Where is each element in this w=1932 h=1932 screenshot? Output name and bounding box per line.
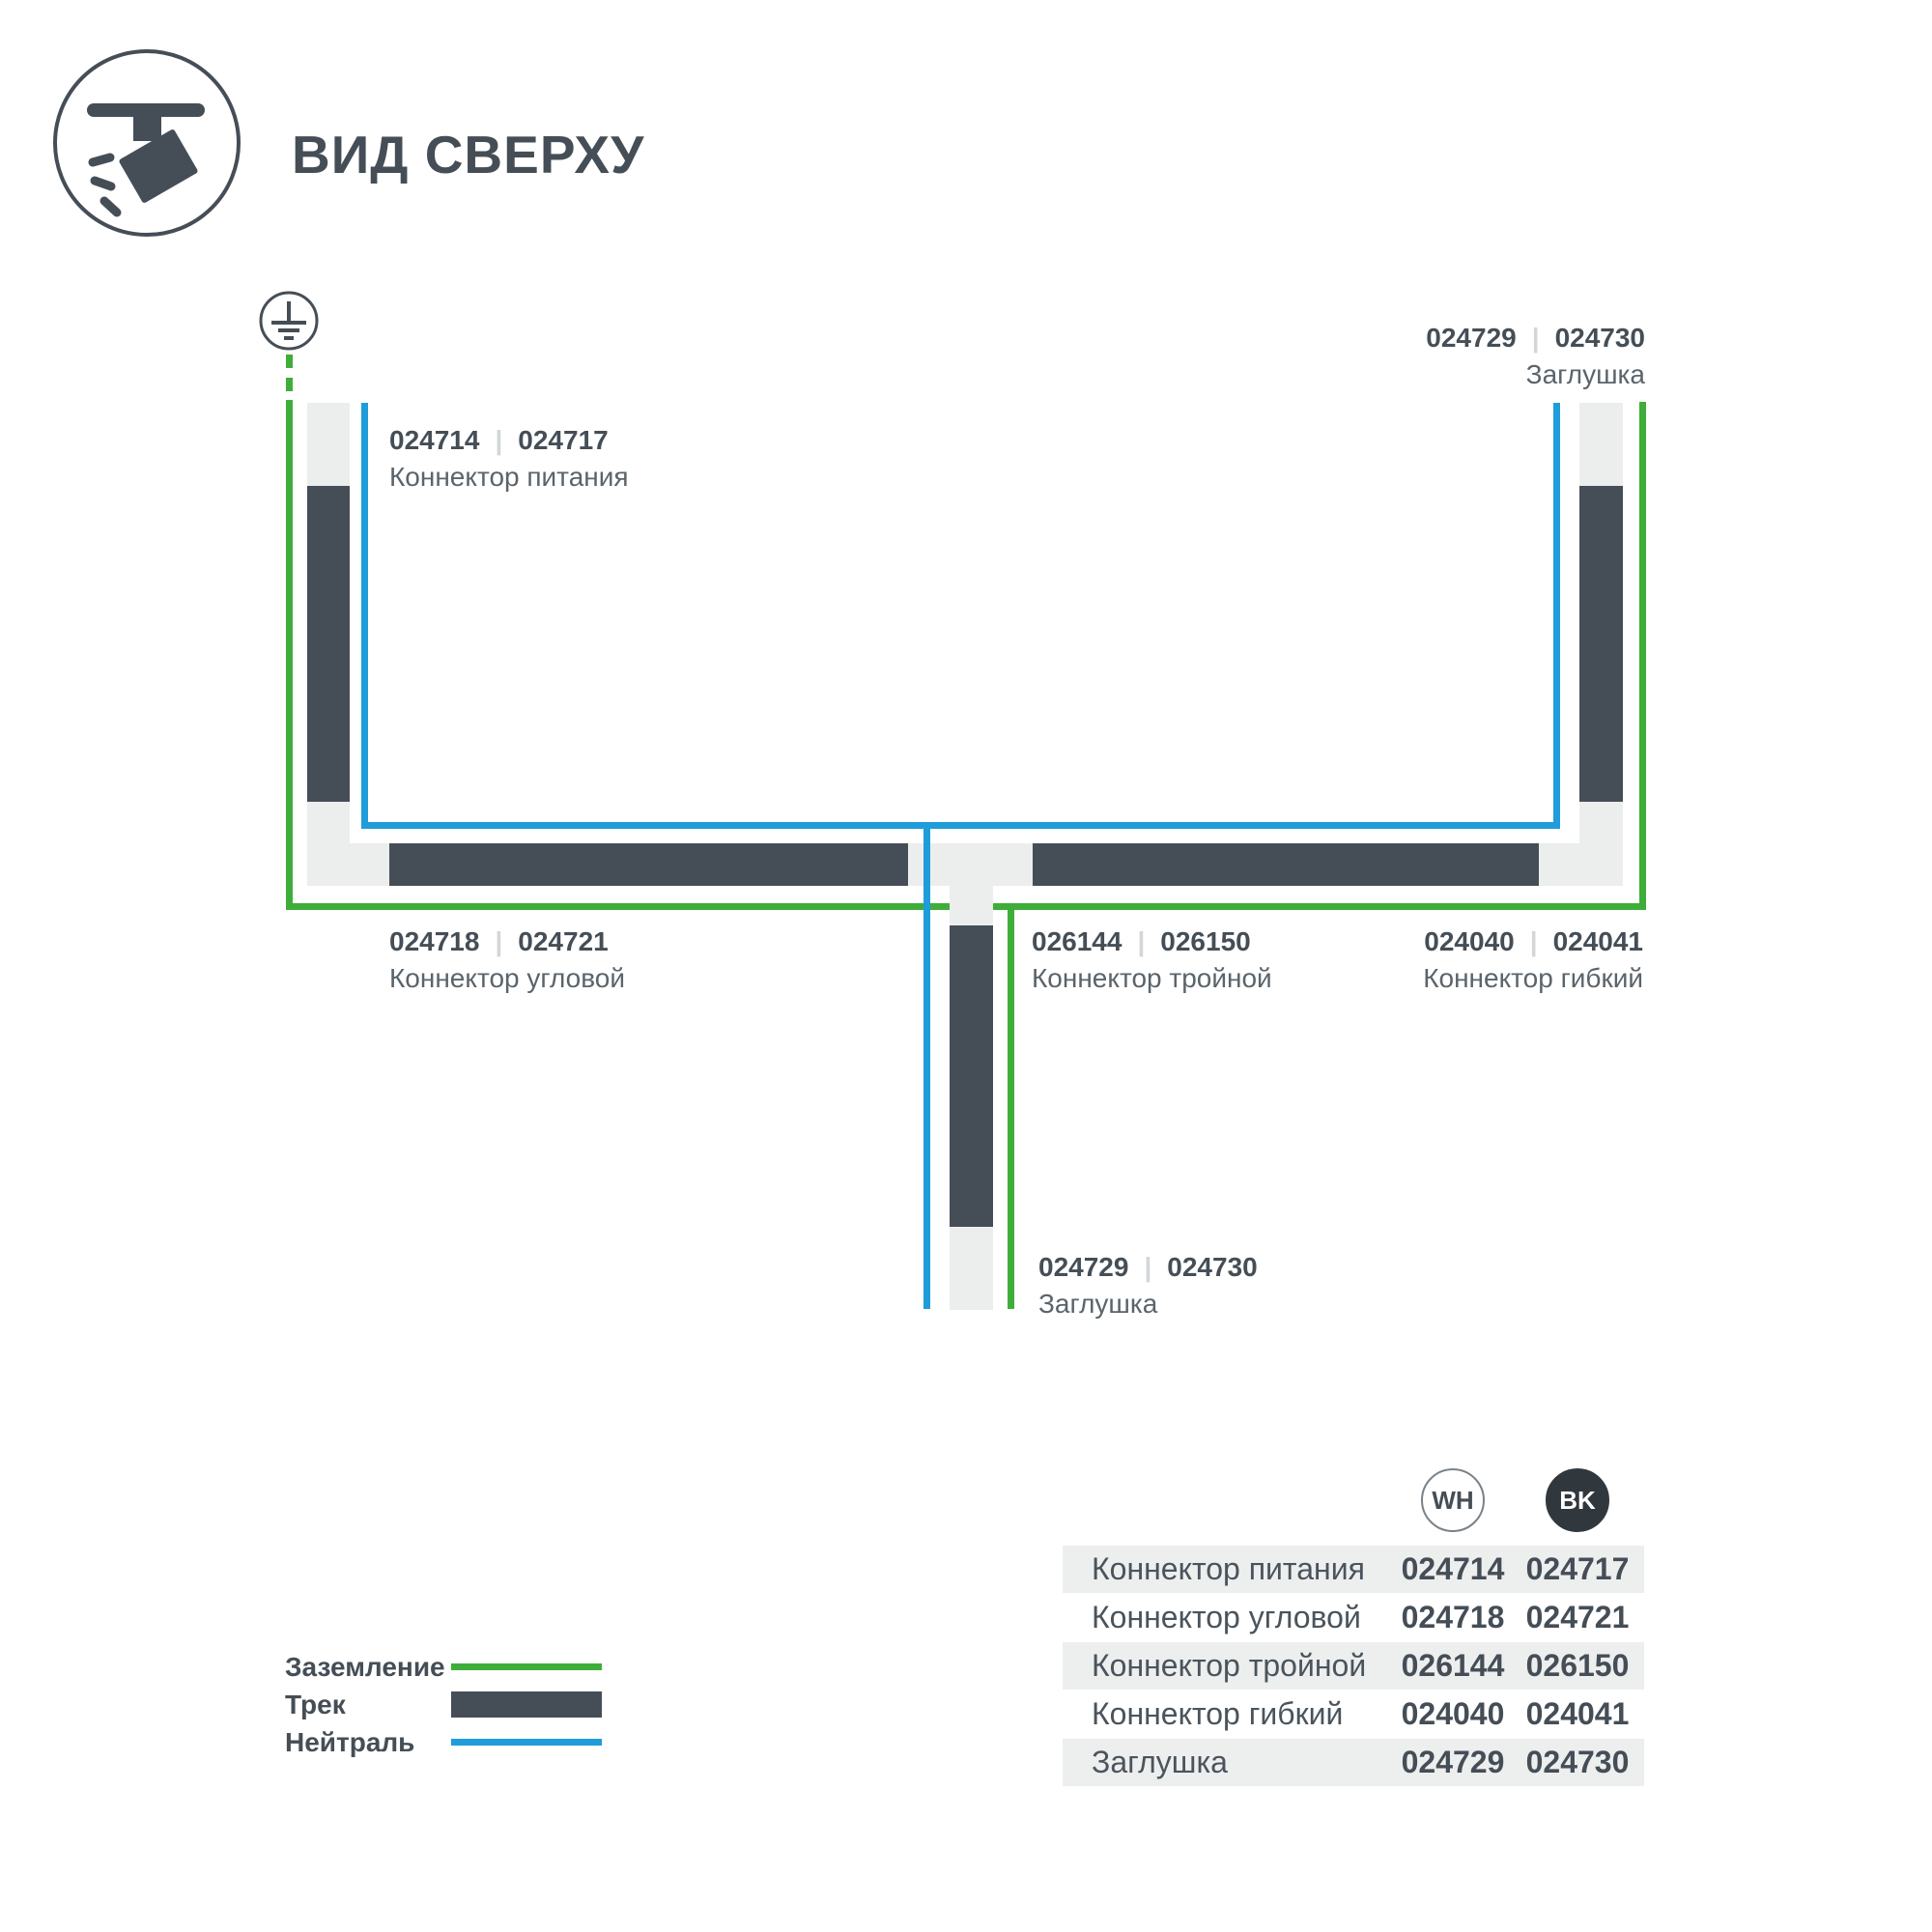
part-name: Заглушка	[1038, 1291, 1258, 1318]
row-part-name: Заглушка	[1063, 1745, 1395, 1780]
part-number-bk: 024721	[518, 928, 608, 955]
row-bk-number: 024730	[1511, 1745, 1644, 1780]
table-row: Коннектор угловой 024718 024721	[1063, 1594, 1644, 1641]
part-numbers: 024729 | 024730	[1038, 1254, 1258, 1281]
track-segment-bottom-left	[389, 843, 908, 886]
row-wh-number: 024714	[1395, 1551, 1511, 1587]
part-number-wh: 024718	[389, 928, 479, 955]
label-separator: |	[1122, 928, 1160, 955]
neutral-line-top	[361, 822, 1560, 829]
part-numbers: 024040 | 024041	[1423, 928, 1643, 955]
cap-top-label: 024729 | 024730 Заглушка	[1426, 325, 1645, 388]
part-number-bk: 024041	[1553, 928, 1643, 955]
legend-item-neutral: Нейтраль	[285, 1723, 602, 1761]
row-part-name: Коннектор угловой	[1063, 1600, 1395, 1635]
legend: Заземление Трек Нейтраль	[285, 1648, 602, 1761]
part-number-bk: 024717	[518, 427, 608, 454]
track-bar-swatch	[451, 1691, 602, 1718]
part-number-wh: 026144	[1032, 928, 1122, 955]
row-bk-number: 024717	[1511, 1551, 1644, 1587]
neutral-line-swatch	[451, 1739, 602, 1746]
part-name: Коннектор угловой	[389, 965, 625, 992]
neutral-line-right	[1553, 403, 1560, 829]
legend-label: Трек	[285, 1690, 451, 1720]
cap-bottom-label: 024729 | 024730 Заглушка	[1038, 1254, 1258, 1318]
corner-connector-label: 024718 | 024721 Коннектор угловой	[389, 928, 625, 992]
table-row: Коннектор гибкий 024040 024041	[1063, 1690, 1644, 1738]
parts-table: WH BK Коннектор питания 024714 024717 Ко…	[1063, 1468, 1644, 1787]
row-wh-number: 024718	[1395, 1600, 1511, 1635]
ground-line-branch	[1008, 908, 1014, 1309]
part-number-wh: 024729	[1038, 1254, 1128, 1281]
part-numbers: 024714 | 024717	[389, 427, 629, 454]
table-row: Коннектор питания 024714 024717	[1063, 1546, 1644, 1593]
power-connector-label: 024714 | 024717 Коннектор питания	[389, 427, 629, 491]
part-name: Заглушка	[1426, 361, 1645, 388]
neutral-line-left	[361, 403, 368, 829]
track-spotlight-icon	[52, 48, 241, 238]
row-part-name: Коннектор гибкий	[1063, 1696, 1395, 1732]
legend-label: Нейтраль	[285, 1727, 451, 1758]
row-part-name: Коннектор тройной	[1063, 1648, 1395, 1684]
part-name: Коннектор тройной	[1032, 965, 1272, 992]
bk-color-badge: BK	[1546, 1468, 1609, 1532]
ground-line-swatch	[451, 1663, 602, 1670]
row-wh-number: 024040	[1395, 1696, 1511, 1732]
row-wh-number: 026144	[1395, 1648, 1511, 1684]
row-wh-number: 024729	[1395, 1745, 1511, 1780]
part-number-bk: 026150	[1160, 928, 1250, 955]
table-row: Коннектор тройной 026144 026150	[1063, 1642, 1644, 1690]
page: ВИД СВЕРХУ 024714 |	[0, 0, 1932, 1932]
ground-dashed-line	[286, 355, 293, 402]
legend-item-ground: Заземление	[285, 1648, 602, 1686]
flexible-connector-label: 024040 | 024041 Коннектор гибкий	[1423, 928, 1643, 992]
part-number-bk: 024730	[1555, 325, 1645, 352]
part-number-wh: 024729	[1426, 325, 1516, 352]
track-segment-left	[307, 486, 350, 802]
track-segment-bottom-right	[1033, 843, 1539, 886]
ground-line-right	[1639, 402, 1646, 910]
ground-line-left	[286, 400, 293, 910]
part-numbers: 026144 | 026150	[1032, 928, 1272, 955]
part-numbers: 024718 | 024721	[389, 928, 625, 955]
label-separator: |	[1128, 1254, 1167, 1281]
table-header: WH BK	[1063, 1468, 1644, 1532]
row-bk-number: 024721	[1511, 1600, 1644, 1635]
label-separator: |	[479, 427, 518, 454]
row-part-name: Коннектор питания	[1063, 1551, 1395, 1587]
triple-connector-label: 026144 | 026150 Коннектор тройной	[1032, 928, 1272, 992]
label-separator: |	[1517, 325, 1555, 352]
page-title: ВИД СВЕРХУ	[292, 124, 644, 185]
part-name: Коннектор гибкий	[1423, 965, 1643, 992]
part-numbers: 024729 | 024730	[1426, 325, 1645, 352]
part-name: Коннектор питания	[389, 464, 629, 491]
row-bk-number: 026150	[1511, 1648, 1644, 1684]
label-separator: |	[1515, 928, 1553, 955]
legend-label: Заземление	[285, 1652, 451, 1683]
ground-icon	[259, 291, 319, 351]
neutral-line-branch	[923, 827, 930, 1309]
corner-connector-right	[1539, 843, 1579, 886]
track-segment-right	[1579, 486, 1623, 802]
row-bk-number: 024041	[1511, 1696, 1644, 1732]
track-segment-middle	[950, 925, 993, 1227]
part-number-wh: 024040	[1424, 928, 1514, 955]
wh-color-badge: WH	[1421, 1468, 1485, 1532]
label-separator: |	[479, 928, 518, 955]
corner-connector-left	[350, 843, 389, 886]
table-row: Заглушка 024729 024730	[1063, 1739, 1644, 1786]
legend-item-track: Трек	[285, 1686, 602, 1723]
part-number-wh: 024714	[389, 427, 479, 454]
part-number-bk: 024730	[1167, 1254, 1257, 1281]
